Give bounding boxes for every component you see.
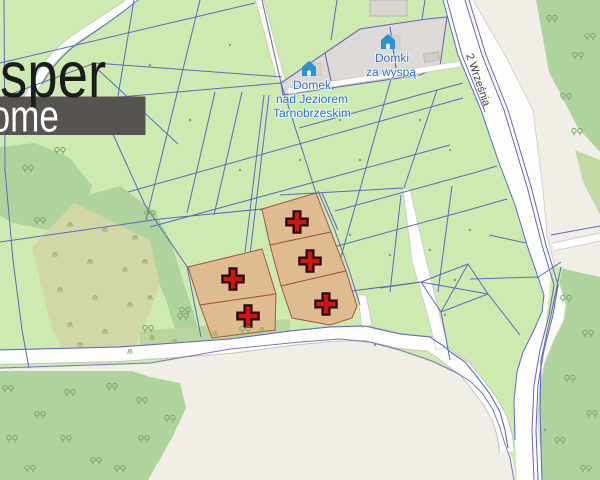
- svg-text:Domek: Domek: [293, 78, 332, 92]
- svg-text:za wyspą: za wyspą: [366, 65, 416, 79]
- svg-text:Tarnobrzeskim: Tarnobrzeskim: [273, 106, 351, 120]
- svg-text:nad Jeziorem: nad Jeziorem: [276, 92, 348, 106]
- svg-text:ome: ome: [0, 91, 59, 142]
- svg-text:Domki: Domki: [375, 51, 409, 65]
